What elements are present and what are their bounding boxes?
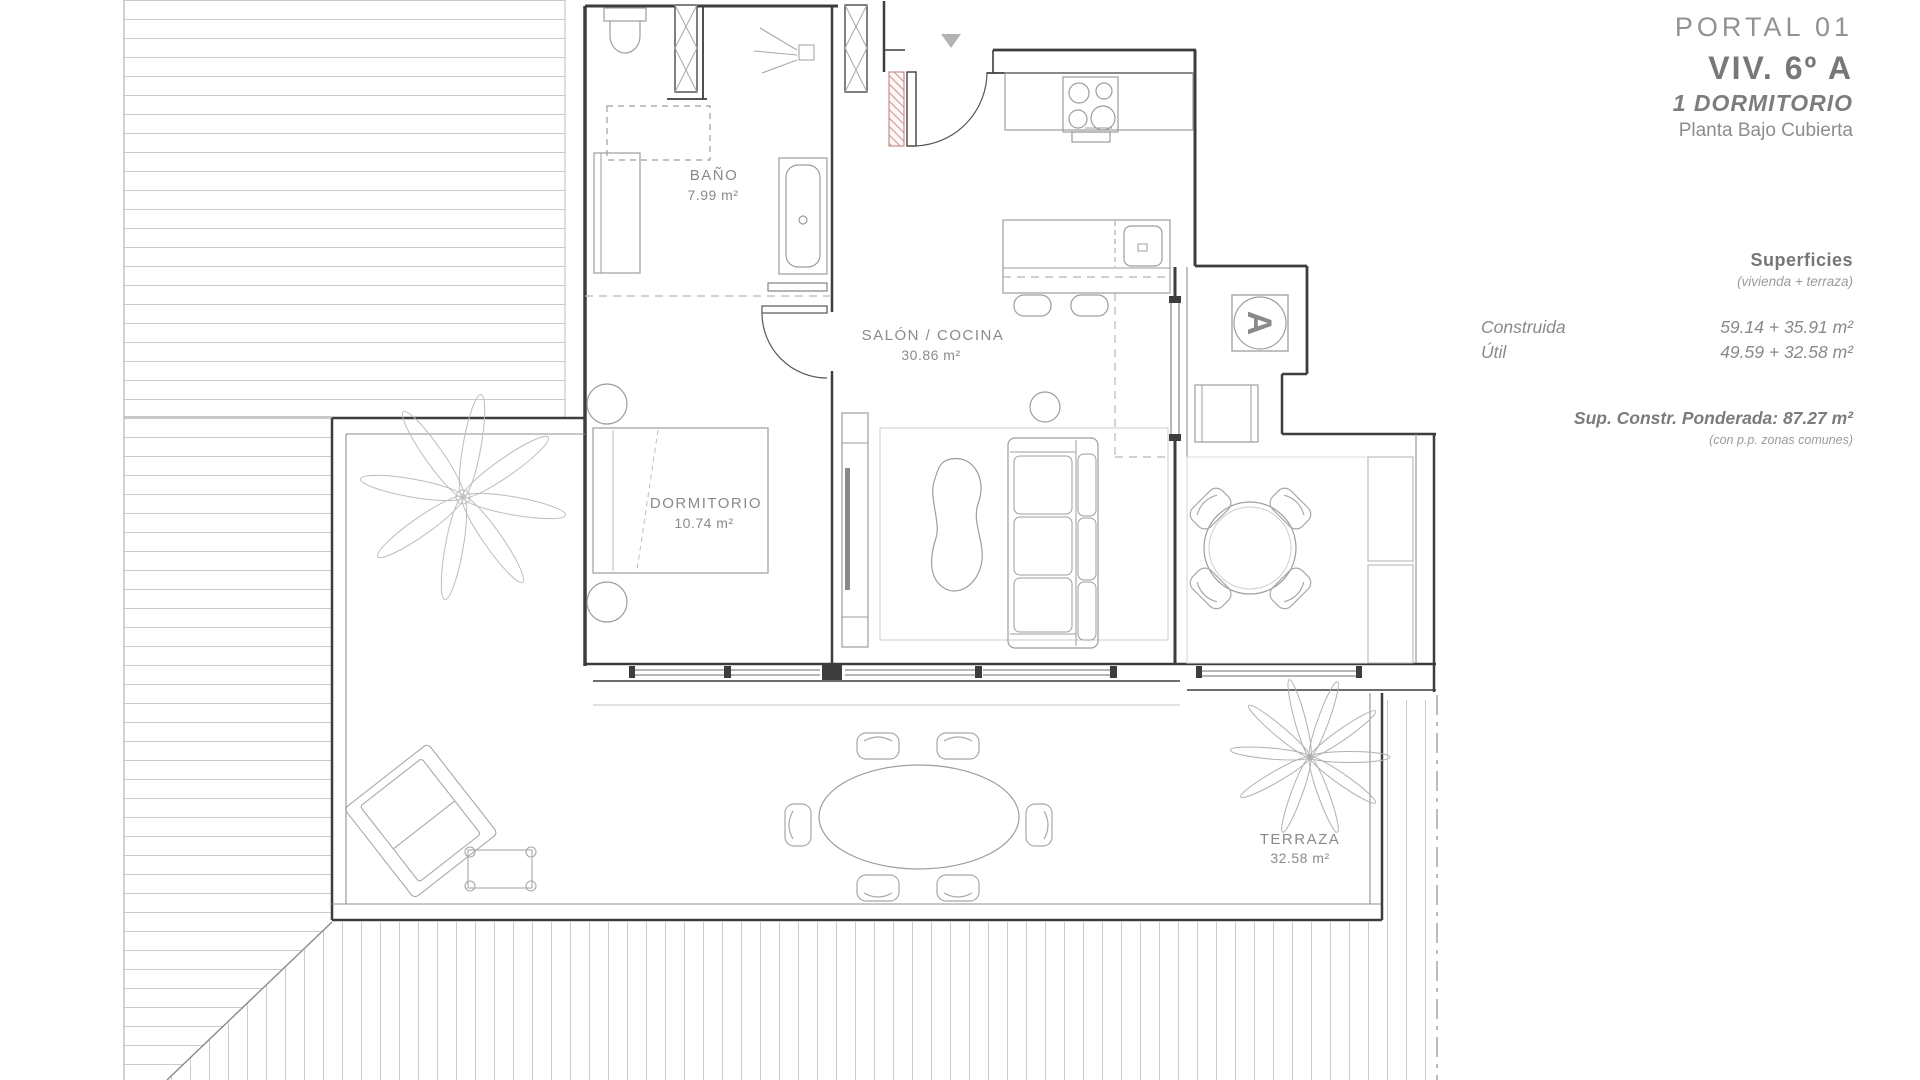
bar-stool xyxy=(1071,295,1108,316)
entry-fire-door xyxy=(889,72,904,146)
vanity-dashed xyxy=(607,106,710,160)
kitchen-counter-top xyxy=(1005,73,1193,130)
bathroom-slider-door xyxy=(768,283,827,291)
room-area-dormitorio: 10.74 m² xyxy=(674,515,733,531)
unit-type: 1 DORMITORIO xyxy=(1673,90,1853,117)
nightstand xyxy=(587,384,627,424)
room-label-dormitorio: DORMITORIO xyxy=(650,495,762,512)
bench-planter xyxy=(1368,457,1413,561)
floor-plan-drawing: A xyxy=(0,0,1920,1080)
terrace-side-table xyxy=(465,847,536,891)
surfaces-weighted: Sup. Constr. Ponderada: 87.27 m² xyxy=(1481,408,1853,429)
lounge-chair xyxy=(344,743,498,898)
title-block: PORTAL 01 VIV. 6º A 1 DORMITORIO Planta … xyxy=(1673,12,1853,142)
surface-label: Construida xyxy=(1481,315,1566,340)
bathroom-fixtures xyxy=(594,5,867,274)
room-area-salon: 30.86 m² xyxy=(901,347,960,363)
bar-stool xyxy=(1014,295,1051,316)
room-area-terraza: 32.58 m² xyxy=(1270,850,1329,866)
kitchen-sink xyxy=(1124,226,1162,266)
sofa xyxy=(1008,438,1098,648)
room-area-bano: 7.99 m² xyxy=(688,187,739,203)
room-label-bano: BAÑO xyxy=(690,167,739,184)
floor-name: Planta Bajo Cubierta xyxy=(1673,120,1853,142)
entrance-marker-icon xyxy=(941,34,961,48)
palm-plant xyxy=(359,393,567,601)
star-plant xyxy=(1230,678,1390,834)
room-label-terraza: TERRAZA xyxy=(1260,831,1341,848)
surfaces-subtitle: (vivienda + terraza) xyxy=(1481,274,1853,289)
portal-title: PORTAL 01 xyxy=(1673,12,1853,43)
rug xyxy=(880,428,1168,640)
floorplan-page: A xyxy=(0,0,1920,1080)
roof-window-icon xyxy=(845,5,867,92)
surface-row-util: Útil 49.59 + 32.58 m² xyxy=(1481,340,1853,365)
surfaces-note: (con p.p. zonas comunes) xyxy=(1481,433,1853,447)
kitchen-fixtures xyxy=(1003,73,1193,316)
nightstand xyxy=(587,582,627,622)
shower-head xyxy=(754,28,814,73)
toilet xyxy=(604,8,646,21)
core-letter: A xyxy=(1240,311,1278,336)
bench-planter xyxy=(1368,565,1413,663)
surface-value: 49.59 + 32.58 m² xyxy=(1720,340,1853,365)
entry-door-swing xyxy=(915,72,987,146)
room-labels: BAÑO 7.99 m² SALÓN / COCINA 30.86 m² DOR… xyxy=(650,167,1340,866)
bedroom-door-swing xyxy=(762,313,827,378)
low-ceiling-dashed-lines xyxy=(585,277,1171,457)
side-table xyxy=(1030,392,1060,422)
surface-label: Útil xyxy=(1481,340,1506,365)
roof-window-icon xyxy=(675,5,697,92)
roof-hatching xyxy=(124,0,1437,1080)
tv-unit xyxy=(842,413,868,647)
living-room-furniture xyxy=(880,392,1168,648)
unit-title: VIV. 6º A xyxy=(1673,50,1853,87)
surface-value: 59.14 + 35.91 m² xyxy=(1720,315,1853,340)
windows xyxy=(629,296,1362,680)
surfaces-rows: Construida 59.14 + 35.91 m² Útil 49.59 +… xyxy=(1481,315,1853,366)
room-label-salon: SALÓN / COCINA xyxy=(862,327,1005,344)
utility-appliance xyxy=(1195,385,1258,442)
coffee-table-organic xyxy=(932,459,983,591)
surfaces-title: Superficies xyxy=(1481,250,1853,271)
surface-row-construida: Construida 59.14 + 35.91 m² xyxy=(1481,315,1853,340)
dining-table-set xyxy=(785,733,1052,901)
kitchen-peninsula xyxy=(1003,220,1170,293)
covered-terrace-floor xyxy=(1187,457,1413,663)
core-and-wing: A xyxy=(1187,295,1413,663)
surfaces-panel: Superficies (vivienda + terraza) Constru… xyxy=(1481,250,1853,447)
bathtub xyxy=(779,158,827,274)
round-table-set xyxy=(1187,485,1315,613)
stove xyxy=(1063,77,1118,142)
